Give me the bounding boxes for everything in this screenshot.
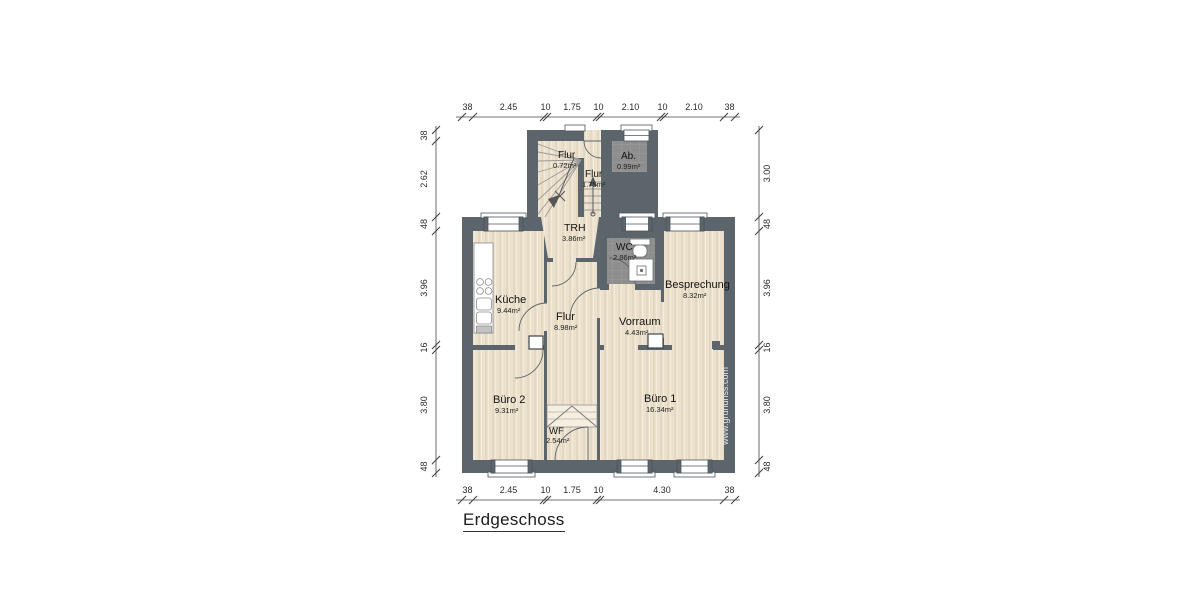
wall-post bbox=[712, 341, 720, 349]
floor-besprechung-buero1-opening bbox=[672, 345, 713, 350]
dim-label: 4.30 bbox=[653, 485, 671, 495]
stove-burner bbox=[485, 288, 492, 295]
stove-burner bbox=[477, 279, 484, 286]
dim-label: 10 bbox=[657, 102, 667, 112]
room-label-flur-top: Flur bbox=[558, 150, 576, 161]
page-title: Erdgeschoss bbox=[463, 510, 565, 532]
kitchen-fixtures bbox=[474, 243, 493, 333]
window-ab-top bbox=[621, 125, 652, 141]
dim-label: 16 bbox=[762, 342, 772, 352]
dim-label: 10 bbox=[540, 485, 550, 495]
dim-label: 10 bbox=[593, 485, 603, 495]
dim-label: 48 bbox=[762, 461, 772, 471]
dim-label: 3.96 bbox=[419, 279, 429, 297]
dim-label: 1.75 bbox=[563, 485, 581, 495]
room-label-trh: TRH bbox=[564, 222, 586, 234]
window-kueche-top bbox=[481, 213, 526, 231]
dim-label: 38 bbox=[724, 485, 734, 495]
dim-label: 38 bbox=[462, 485, 472, 495]
room-area-ab: 0.99m² bbox=[617, 162, 641, 171]
room-label-kueche: Küche bbox=[495, 294, 526, 306]
room-area-wf: 2.54m² bbox=[546, 436, 570, 445]
window-buero1-bottom-left bbox=[614, 460, 655, 477]
floor-flur-vorraum-gap bbox=[597, 288, 600, 318]
room-area-besprechung: 8.32m² bbox=[683, 291, 707, 300]
dim-label: 38 bbox=[724, 102, 734, 112]
dim-label: 3.00 bbox=[762, 165, 772, 183]
room-label-buero2: Büro 2 bbox=[493, 394, 525, 406]
stove-burner bbox=[485, 279, 492, 286]
window-buero2-bottom bbox=[488, 460, 535, 477]
entrance-canopy bbox=[565, 125, 585, 131]
floor-kueche-door-gap bbox=[544, 303, 547, 331]
floor-plan-svg: 38 2.45 10 1.75 10 2.10 10 2.10 38 38 2.… bbox=[0, 0, 1200, 600]
room-area-buero2: 9.31m² bbox=[495, 406, 519, 415]
dim-label: 3.96 bbox=[762, 279, 772, 297]
entry-steps-symbol bbox=[547, 405, 597, 427]
room-label-besprechung: Besprechung bbox=[665, 279, 730, 291]
watermark: www.grundriss.com bbox=[720, 367, 730, 446]
dimension-labels-top: 38 2.45 10 1.75 10 2.10 10 2.10 38 bbox=[462, 102, 734, 112]
dimension-labels-left: 38 2.62 48 3.96 16 3.80 48 bbox=[419, 130, 429, 471]
dim-label: 10 bbox=[593, 102, 603, 112]
floor-entrance-gap bbox=[584, 130, 601, 141]
room-area-flur-top: 0.72m² bbox=[553, 161, 577, 170]
dim-label: 38 bbox=[419, 130, 429, 140]
dim-label: 16 bbox=[419, 342, 429, 352]
room-area-buero1: 16.34m² bbox=[646, 405, 674, 414]
floor-vorraum-buero1-opening bbox=[604, 345, 638, 350]
stove-burner bbox=[477, 288, 484, 295]
toilet-tank bbox=[630, 239, 650, 245]
dimension-labels-right: 3.00 48 3.96 16 3.80 48 bbox=[762, 165, 772, 472]
floor-wc-door-gap bbox=[609, 284, 635, 290]
room-label-wc: WC bbox=[616, 242, 633, 253]
floor-trh-door-gap bbox=[553, 258, 576, 263]
window-wc-top bbox=[619, 213, 655, 231]
room-area-flur-mid: 1.75m² bbox=[582, 180, 606, 189]
dim-label: 2.10 bbox=[622, 102, 640, 112]
room-label-flur-mid: Flur bbox=[585, 169, 603, 180]
dim-label: 2.10 bbox=[685, 102, 703, 112]
room-label-flur: Flur bbox=[556, 311, 575, 323]
room-label-buero1: Büro 1 bbox=[644, 393, 676, 405]
room-area-kueche: 9.44m² bbox=[497, 306, 521, 315]
floor-plan-page: 38 2.45 10 1.75 10 2.10 10 2.10 38 38 2.… bbox=[0, 0, 1200, 600]
dim-label: 3.80 bbox=[419, 396, 429, 414]
sink-basin bbox=[477, 312, 492, 324]
dim-label: 48 bbox=[419, 461, 429, 471]
room-area-wc: 2.86m² bbox=[613, 253, 637, 262]
room-label-ab: Ab. bbox=[621, 151, 636, 162]
dim-label: 38 bbox=[462, 102, 472, 112]
room-area-trh: 3.86m² bbox=[562, 234, 586, 243]
dim-label: 48 bbox=[762, 219, 772, 229]
chimney-left bbox=[529, 336, 543, 349]
dim-label: 10 bbox=[540, 102, 550, 112]
dim-label: 2.45 bbox=[500, 102, 518, 112]
dim-label: 3.80 bbox=[762, 396, 772, 414]
room-area-vorraum: 4.43m² bbox=[625, 328, 649, 337]
dim-label: 2.45 bbox=[500, 485, 518, 495]
shower-drain-dot bbox=[640, 269, 642, 271]
dim-label: 2.62 bbox=[419, 170, 429, 188]
window-buero1-bottom-right bbox=[674, 460, 715, 477]
dim-label: 48 bbox=[419, 219, 429, 229]
dimension-labels-bottom: 38 2.45 10 1.75 10 4.30 38 bbox=[462, 485, 734, 495]
sink-basin bbox=[477, 298, 492, 310]
room-area-flur: 8.98m² bbox=[554, 323, 578, 332]
room-label-vorraum: Vorraum bbox=[619, 316, 661, 328]
dim-label: 1.75 bbox=[563, 102, 581, 112]
counter-end bbox=[477, 326, 492, 333]
floor-vorraum-besprechung-gap bbox=[661, 302, 664, 338]
chimney-right bbox=[648, 334, 663, 348]
window-besprechung-top bbox=[663, 213, 707, 231]
